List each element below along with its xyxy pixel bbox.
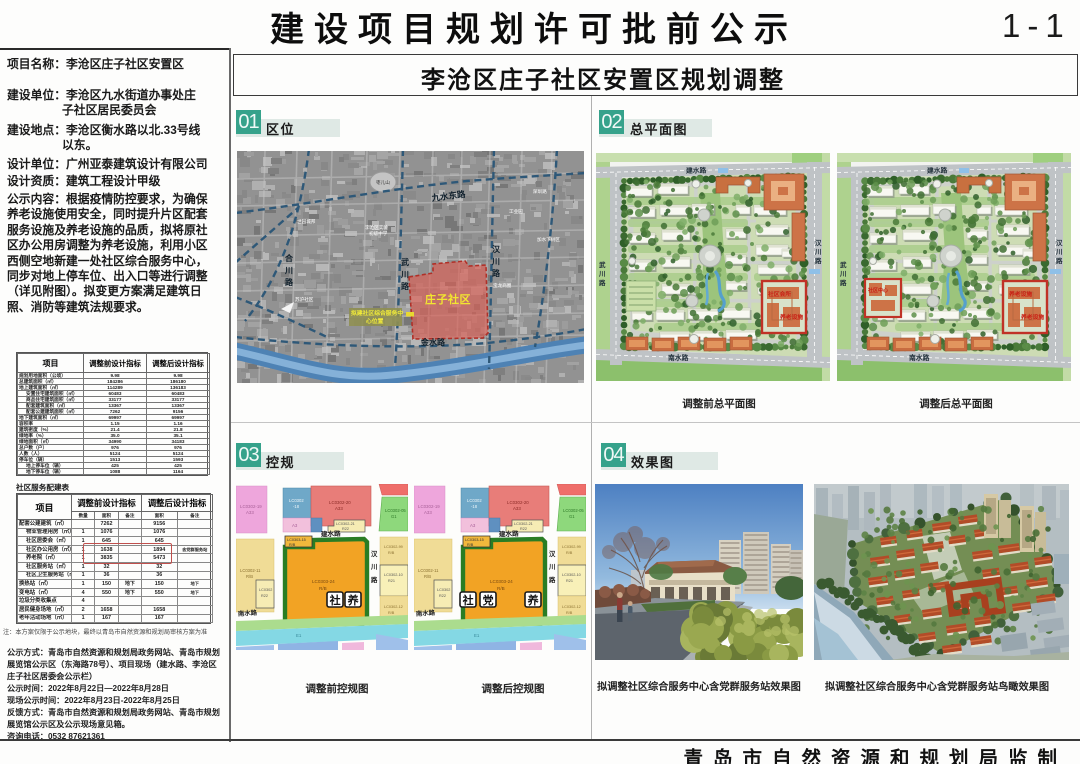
svg-text:路: 路 <box>1056 256 1063 265</box>
svg-text:社区会所: 社区会所 <box>767 290 791 298</box>
svg-text:川: 川 <box>814 248 822 256</box>
svg-text:李沧区实验: 李沧区实验 <box>365 224 388 231</box>
svg-text:金水路: 金水路 <box>420 337 446 347</box>
svg-text:川: 川 <box>839 270 847 278</box>
svg-text:社: 社 <box>329 593 341 607</box>
svg-text:R/B: R/B <box>246 574 253 579</box>
svg-text:合: 合 <box>284 253 294 263</box>
svg-text:社区中心: 社区中心 <box>867 287 888 294</box>
svg-text:R/B: R/B <box>566 611 573 615</box>
svg-text:汉: 汉 <box>492 244 501 254</box>
svg-text:R/B: R/B <box>566 551 573 555</box>
svg-text:R22: R22 <box>261 594 268 598</box>
svg-text:加水下树区: 加水下树区 <box>537 236 560 243</box>
svg-text:LC0302-11: LC0302-11 <box>240 568 261 573</box>
svg-text:路: 路 <box>492 268 501 278</box>
svg-text:路: 路 <box>401 281 410 291</box>
svg-text:汉: 汉 <box>815 238 822 247</box>
svg-text:A33: A33 <box>513 506 521 511</box>
svg-text:R/B: R/B <box>388 611 395 615</box>
svg-text:川: 川 <box>1055 248 1063 256</box>
svg-text:LC0302: LC0302 <box>289 498 304 503</box>
svg-text:R21: R21 <box>566 579 573 583</box>
svg-text:LC0302-05: LC0302-05 <box>563 508 584 513</box>
svg-text:川: 川 <box>370 563 377 571</box>
svg-text:-18: -18 <box>471 504 478 509</box>
svg-text:武: 武 <box>401 257 409 267</box>
svg-text:川: 川 <box>491 257 500 266</box>
svg-text:工业园: 工业园 <box>509 208 523 215</box>
svg-text:养: 养 <box>347 593 360 607</box>
svg-text:LC0302-21: LC0302-21 <box>336 522 355 526</box>
svg-text:养老设施: 养老设施 <box>1008 290 1032 298</box>
svg-text:R/B: R/B <box>319 586 327 591</box>
svg-text:LC0303-15: LC0303-15 <box>465 538 484 542</box>
svg-text:A33: A33 <box>424 510 432 515</box>
svg-text:枣儿山: 枣儿山 <box>376 179 390 186</box>
svg-text:R22: R22 <box>439 594 446 598</box>
svg-text:路: 路 <box>840 278 847 287</box>
svg-text:路: 路 <box>285 277 294 287</box>
svg-text:LC0302-21: LC0302-21 <box>514 522 533 526</box>
svg-text:R/B: R/B <box>467 543 474 547</box>
svg-text:社: 社 <box>462 593 474 607</box>
svg-text:养: 养 <box>527 593 540 607</box>
svg-text:党: 党 <box>483 593 494 607</box>
svg-text:南水路: 南水路 <box>668 353 689 362</box>
svg-text:E1: E1 <box>474 633 480 638</box>
svg-text:庄子社区: 庄子社区 <box>425 292 471 306</box>
svg-text:心位置: 心位置 <box>366 317 384 325</box>
svg-text:初级中学: 初级中学 <box>369 230 388 237</box>
svg-text:养老设施: 养老设施 <box>1020 313 1044 321</box>
svg-text:LC0302: LC0302 <box>259 588 272 592</box>
svg-text:A33: A33 <box>335 506 343 511</box>
svg-text:汉: 汉 <box>549 549 556 558</box>
svg-text:LC0302-99: LC0302-99 <box>384 545 403 549</box>
svg-text:A3: A3 <box>470 523 476 528</box>
svg-text:R21: R21 <box>388 579 395 583</box>
svg-text:路: 路 <box>549 575 556 584</box>
svg-text:路: 路 <box>815 256 822 265</box>
svg-text:路: 路 <box>599 278 606 287</box>
svg-text:-18: -18 <box>293 504 300 509</box>
svg-text:G1: G1 <box>569 514 575 519</box>
svg-text:川: 川 <box>400 270 409 279</box>
svg-text:川: 川 <box>284 266 293 275</box>
svg-text:宝龙商圈: 宝龙商圈 <box>493 282 512 289</box>
svg-text:LC0302-19: LC0302-19 <box>240 504 262 509</box>
svg-text:LC0302: LC0302 <box>437 588 450 592</box>
svg-text:R/B: R/B <box>497 586 505 591</box>
svg-text:R22: R22 <box>520 527 527 531</box>
svg-text:LC0302-20: LC0302-20 <box>329 500 351 505</box>
svg-text:LC0303-15: LC0303-15 <box>287 538 306 542</box>
svg-text:LC0302-99: LC0302-99 <box>562 545 581 549</box>
svg-text:R/B: R/B <box>388 551 395 555</box>
svg-text:A3: A3 <box>292 523 298 528</box>
svg-text:LC0302-20: LC0302-20 <box>507 500 529 505</box>
svg-text:世园城邦: 世园城邦 <box>297 218 316 225</box>
svg-text:LC0302-10: LC0302-10 <box>562 573 581 577</box>
svg-text:R/B: R/B <box>289 543 296 547</box>
svg-text:G1: G1 <box>391 514 397 519</box>
svg-text:LC0302-12: LC0302-12 <box>384 605 403 609</box>
svg-text:LC0302-05: LC0302-05 <box>385 508 406 513</box>
svg-text:汉: 汉 <box>1056 238 1063 247</box>
svg-text:A33: A33 <box>246 510 254 515</box>
svg-text:路: 路 <box>371 575 378 584</box>
svg-text:LC0302-10: LC0302-10 <box>384 573 403 577</box>
svg-text:南水路: 南水路 <box>909 353 930 362</box>
svg-text:武: 武 <box>599 260 606 269</box>
svg-text:LC0302-11: LC0302-11 <box>418 568 439 573</box>
svg-text:深圳路: 深圳路 <box>533 188 547 195</box>
svg-text:LC0303-24: LC0303-24 <box>312 579 335 584</box>
svg-text:R/B: R/B <box>424 574 431 579</box>
svg-text:LC0302: LC0302 <box>467 498 482 503</box>
svg-text:川: 川 <box>548 563 555 571</box>
svg-text:R22: R22 <box>342 527 349 531</box>
svg-text:LC0302-12: LC0302-12 <box>562 605 581 609</box>
svg-text:LC0303-24: LC0303-24 <box>490 579 513 584</box>
svg-text:武: 武 <box>840 260 847 269</box>
svg-text:养老设施: 养老设施 <box>779 313 803 321</box>
svg-text:苏沪社区: 苏沪社区 <box>295 296 314 303</box>
svg-text:建水路: 建水路 <box>926 166 948 175</box>
svg-text:拟建社区综合服务中: 拟建社区综合服务中 <box>351 309 403 317</box>
svg-text:LC0302-19: LC0302-19 <box>418 504 440 509</box>
svg-text:汉: 汉 <box>371 549 378 558</box>
svg-text:川: 川 <box>598 270 606 278</box>
svg-text:建水路: 建水路 <box>685 166 707 175</box>
svg-text:E1: E1 <box>296 633 302 638</box>
